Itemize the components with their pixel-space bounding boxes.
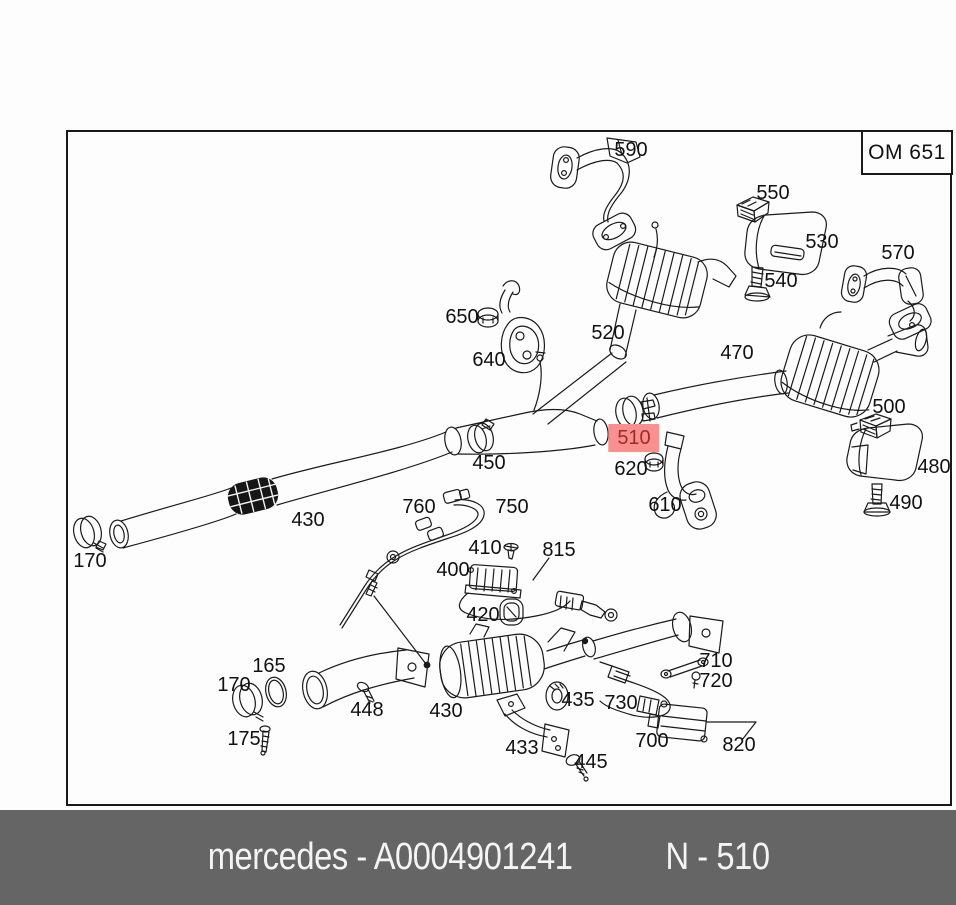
part-label-170-front[interactable]: 170 xyxy=(70,549,109,573)
part-label-448[interactable]: 448 xyxy=(347,698,386,722)
part-label-165[interactable]: 165 xyxy=(249,654,288,678)
part-label-530[interactable]: 530 xyxy=(802,230,841,254)
part-label-720[interactable]: 720 xyxy=(696,669,735,693)
part-label-430-front[interactable]: 430 xyxy=(288,508,327,532)
part-label-640[interactable]: 640 xyxy=(469,348,508,372)
part-label-433[interactable]: 433 xyxy=(502,736,541,760)
part-label-170-down[interactable]: 170 xyxy=(214,673,253,697)
part-label-400[interactable]: 400 xyxy=(433,558,472,582)
part-label-490[interactable]: 490 xyxy=(886,491,925,515)
part-label-480[interactable]: 480 xyxy=(914,455,953,479)
part-label-650[interactable]: 650 xyxy=(442,305,481,329)
part-label-175[interactable]: 175 xyxy=(224,727,263,751)
part-label-700[interactable]: 700 xyxy=(632,729,671,753)
caption-bar: mercedes - A0004901241 N - 510 xyxy=(0,810,956,905)
part-label-570[interactable]: 570 xyxy=(878,241,917,265)
part-label-760[interactable]: 760 xyxy=(399,495,438,519)
parts-diagram-page: OM 651 590550530540570650640520470500480… xyxy=(0,0,956,905)
part-label-520[interactable]: 520 xyxy=(588,321,627,345)
part-label-450[interactable]: 450 xyxy=(469,451,508,475)
part-label-620[interactable]: 620 xyxy=(611,457,650,481)
part-label-435[interactable]: 435 xyxy=(558,688,597,712)
part-label-610[interactable]: 610 xyxy=(645,493,684,517)
part-label-540[interactable]: 540 xyxy=(761,269,800,293)
part-label-815[interactable]: 815 xyxy=(539,538,578,562)
caption-part-number: mercedes - A0004901241 xyxy=(208,836,573,879)
part-label-510[interactable]: 510 xyxy=(608,424,659,452)
part-label-550[interactable]: 550 xyxy=(753,181,792,205)
part-label-500[interactable]: 500 xyxy=(869,395,908,419)
part-label-445[interactable]: 445 xyxy=(571,750,610,774)
part-label-590[interactable]: 590 xyxy=(611,138,650,162)
part-label-430-cat[interactable]: 430 xyxy=(426,699,465,723)
part-label-820[interactable]: 820 xyxy=(719,733,758,757)
part-label-410[interactable]: 410 xyxy=(465,536,504,560)
part-label-420[interactable]: 420 xyxy=(463,603,502,627)
caption-reference: N - 510 xyxy=(665,836,769,879)
part-label-730[interactable]: 730 xyxy=(601,691,640,715)
part-label-470[interactable]: 470 xyxy=(717,341,756,365)
part-label-750[interactable]: 750 xyxy=(492,495,531,519)
part-labels-layer: 5905505305405706506405204705004804904505… xyxy=(0,0,956,905)
